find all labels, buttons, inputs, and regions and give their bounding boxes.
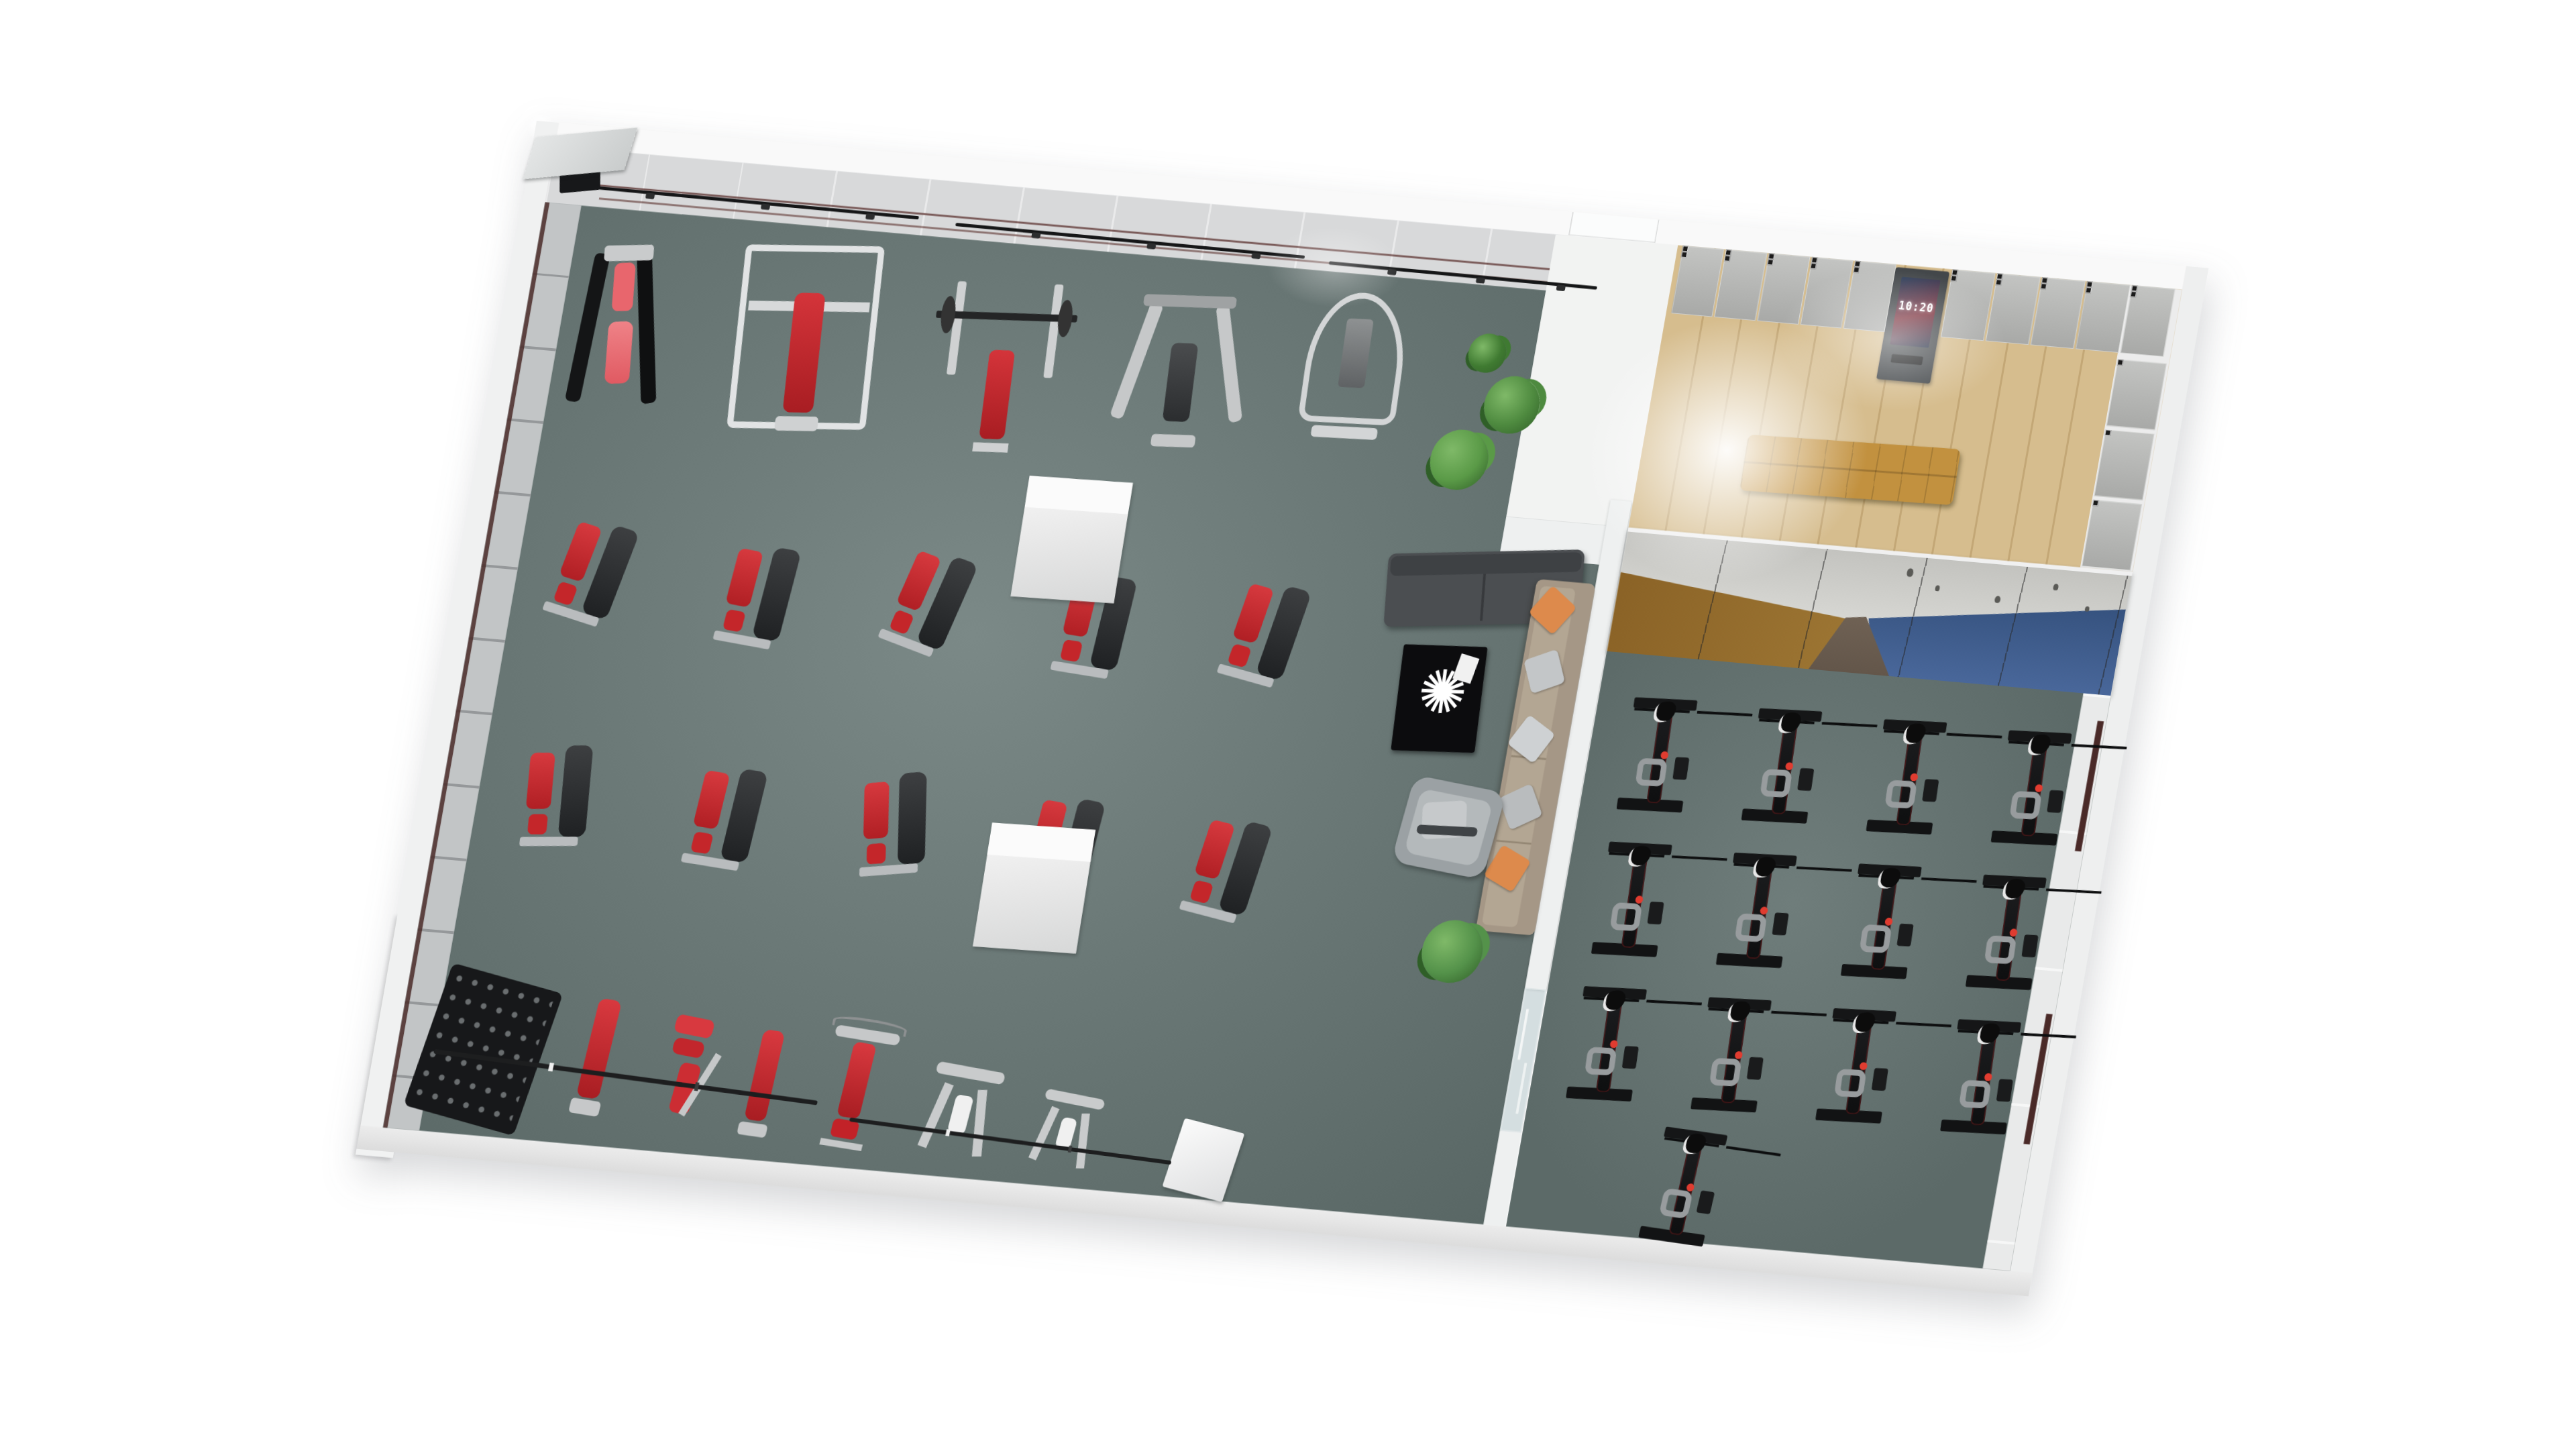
bike-handlebar xyxy=(1659,1188,1693,1220)
bike-resistance-unit xyxy=(2021,934,2038,957)
hack-bar2 xyxy=(637,248,656,404)
legm-fr xyxy=(935,1061,1006,1085)
bike-knob xyxy=(1635,896,1644,904)
bench-seam xyxy=(1743,461,1957,478)
bike-handlebar xyxy=(1735,913,1768,942)
spotlight xyxy=(1251,253,1261,260)
pec-base xyxy=(1150,434,1195,447)
rack-base xyxy=(972,442,1008,453)
bike-handlebar xyxy=(2009,791,2042,820)
bike-resistance-unit xyxy=(1747,1057,1764,1080)
kiosk-time: 10:20 xyxy=(1896,299,1937,315)
machine-seat2 xyxy=(722,609,746,633)
latpull-pad xyxy=(837,1041,877,1119)
plant-foliage xyxy=(1417,918,1488,985)
bike-knob xyxy=(1660,751,1669,759)
bike-resistance-unit xyxy=(2047,790,2063,813)
kiosk-screen[interactable]: 10:20 xyxy=(1890,277,1940,348)
benchv-base xyxy=(737,1121,768,1138)
bike-resistance-unit xyxy=(1697,1190,1715,1214)
hack-padr xyxy=(612,262,636,311)
plant-foliage xyxy=(1479,374,1544,436)
bike-knob xyxy=(2009,928,2018,936)
machine-seat xyxy=(692,770,730,829)
floor-plan: 10:20 ✺ xyxy=(356,121,2208,1296)
bike-resistance-unit xyxy=(1622,1046,1639,1069)
bike-handlebar xyxy=(1585,1046,1617,1075)
bike-resistance-unit xyxy=(1872,1068,1888,1091)
bike-knob xyxy=(1785,762,1794,770)
machine-seat2 xyxy=(553,581,578,606)
roman-roll1 xyxy=(673,1014,715,1039)
bike-resistance-unit xyxy=(1672,757,1689,780)
bike-handlebar xyxy=(1984,935,2017,964)
lounge-plant xyxy=(1417,918,1488,985)
bike-knob xyxy=(1734,1051,1743,1059)
bike-resistance-unit xyxy=(1772,912,1788,935)
roman-roll2 xyxy=(672,1037,705,1059)
machine-frame xyxy=(519,837,578,847)
instructor-display-stand xyxy=(529,128,631,196)
machine-frame xyxy=(859,863,918,877)
fiddle-leaf-plant xyxy=(1479,374,1544,436)
hack-fr xyxy=(604,245,654,262)
structural-column xyxy=(973,822,1095,953)
locker-number-chip xyxy=(1951,275,1957,281)
smith-machine xyxy=(719,240,892,441)
bike-handlebar xyxy=(1860,924,1892,953)
locker-number-chip xyxy=(2040,283,2047,289)
door-handle xyxy=(1515,1063,1527,1114)
hack-squat-machine xyxy=(570,244,677,419)
palm-plant xyxy=(1426,427,1493,492)
bike-resistance-unit xyxy=(1996,1079,2013,1102)
spotlight xyxy=(1146,243,1157,250)
machine-seat2 xyxy=(1189,879,1214,904)
bike-resistance-unit xyxy=(1896,924,1913,947)
lounge-media-panel: ✺ xyxy=(1391,644,1487,753)
bike-resistance-unit xyxy=(1797,768,1814,791)
machine-seat xyxy=(525,753,555,809)
legm-pad xyxy=(947,1094,974,1134)
bike-knob xyxy=(1686,1183,1695,1192)
plant-foliage xyxy=(1426,427,1493,492)
barbell-rack-bench xyxy=(926,270,1075,460)
sofa-cushion-split xyxy=(1480,574,1486,621)
pec-seat xyxy=(1162,343,1198,422)
sofa-backrest xyxy=(1390,552,1582,576)
bike-knob xyxy=(1884,918,1893,926)
latpull-base xyxy=(820,1138,863,1151)
bike-resistance-unit xyxy=(1647,902,1664,924)
cable-crossover-machine xyxy=(1287,284,1419,452)
smith-base xyxy=(775,417,818,431)
machine-seat2 xyxy=(527,814,548,835)
machine-seat xyxy=(863,782,889,839)
spotlight xyxy=(1387,269,1397,276)
benchv-base xyxy=(568,1097,601,1117)
strength-machine xyxy=(855,763,930,896)
locker-number-chip xyxy=(2130,291,2137,297)
machine-shroud xyxy=(557,745,594,837)
snake-plant xyxy=(1465,332,1509,374)
render-canvas: 10:20 ✺ xyxy=(0,0,2576,1449)
bike-handlebar xyxy=(1834,1069,1867,1097)
legm-fr3 xyxy=(1076,1114,1090,1169)
bike-knob xyxy=(1609,1040,1618,1048)
bike-resistance-unit xyxy=(1922,779,1939,802)
spotlight xyxy=(761,203,771,210)
locker-number-chip xyxy=(2104,429,2111,435)
bike-handlebar xyxy=(1635,758,1668,787)
machine-seat2 xyxy=(1060,639,1083,662)
machine-seat xyxy=(725,548,763,608)
spotlight xyxy=(1031,232,1041,239)
locker-number-chip xyxy=(1724,256,1731,262)
bike-handlebar xyxy=(1610,902,1643,931)
bike-handlebar xyxy=(1959,1080,1992,1109)
kiosk-vent xyxy=(1890,354,1923,366)
legm-pad xyxy=(1055,1116,1078,1150)
bike-knob xyxy=(1760,906,1768,914)
bike-handlebar xyxy=(1709,1058,1742,1087)
locker-number-chip xyxy=(1810,263,1817,269)
rack-bench xyxy=(979,350,1015,439)
machine-seat2 xyxy=(1228,643,1252,668)
bike-handlebar xyxy=(1760,769,1792,798)
spotlight xyxy=(1556,284,1566,291)
bike-knob xyxy=(1984,1073,1992,1081)
structural-column xyxy=(1010,476,1132,603)
locker-number-chip xyxy=(1681,252,1688,258)
hack-padp xyxy=(604,321,634,384)
locker-number-chip xyxy=(2092,500,2099,506)
legm-fr3 xyxy=(972,1090,987,1157)
locker-number-chip xyxy=(1767,259,1774,265)
plant-foliage xyxy=(1465,332,1509,374)
locker-number-chip xyxy=(1995,279,2002,285)
pec-fly-machine xyxy=(1115,290,1246,464)
machine-shroud xyxy=(898,771,927,865)
spotlight xyxy=(645,193,655,199)
bike-knob xyxy=(1910,773,1919,781)
machine-seat2 xyxy=(867,843,886,864)
spotlight xyxy=(865,213,875,220)
strength-machine xyxy=(513,737,597,865)
bike-knob xyxy=(2035,784,2043,792)
machine-seat2 xyxy=(690,831,714,854)
bike-handlebar xyxy=(1884,780,1917,809)
cross-base xyxy=(1311,425,1379,439)
machine-seat2 xyxy=(889,609,914,635)
spotlight xyxy=(1475,277,1485,284)
locker-number-chip xyxy=(1853,266,1860,272)
locker-number-chip xyxy=(2117,360,2124,366)
bike-knob xyxy=(1859,1062,1868,1070)
locker-number-chip xyxy=(2085,287,2092,293)
